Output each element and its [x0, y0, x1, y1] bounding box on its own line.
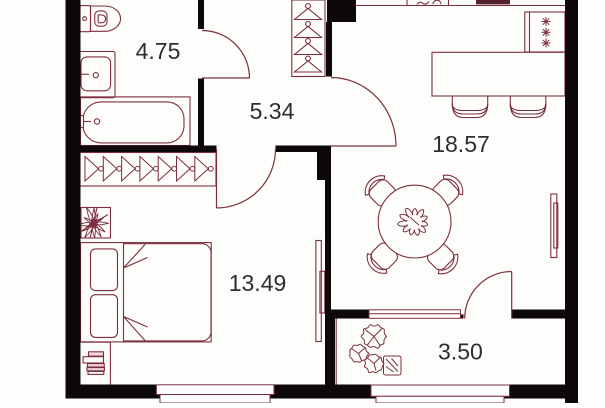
svg-text:5.34: 5.34: [250, 98, 295, 124]
svg-text:13.49: 13.49: [229, 270, 287, 296]
svg-text:18.57: 18.57: [432, 131, 490, 157]
svg-text:4.75: 4.75: [136, 38, 181, 64]
svg-text:3.50: 3.50: [438, 339, 483, 365]
